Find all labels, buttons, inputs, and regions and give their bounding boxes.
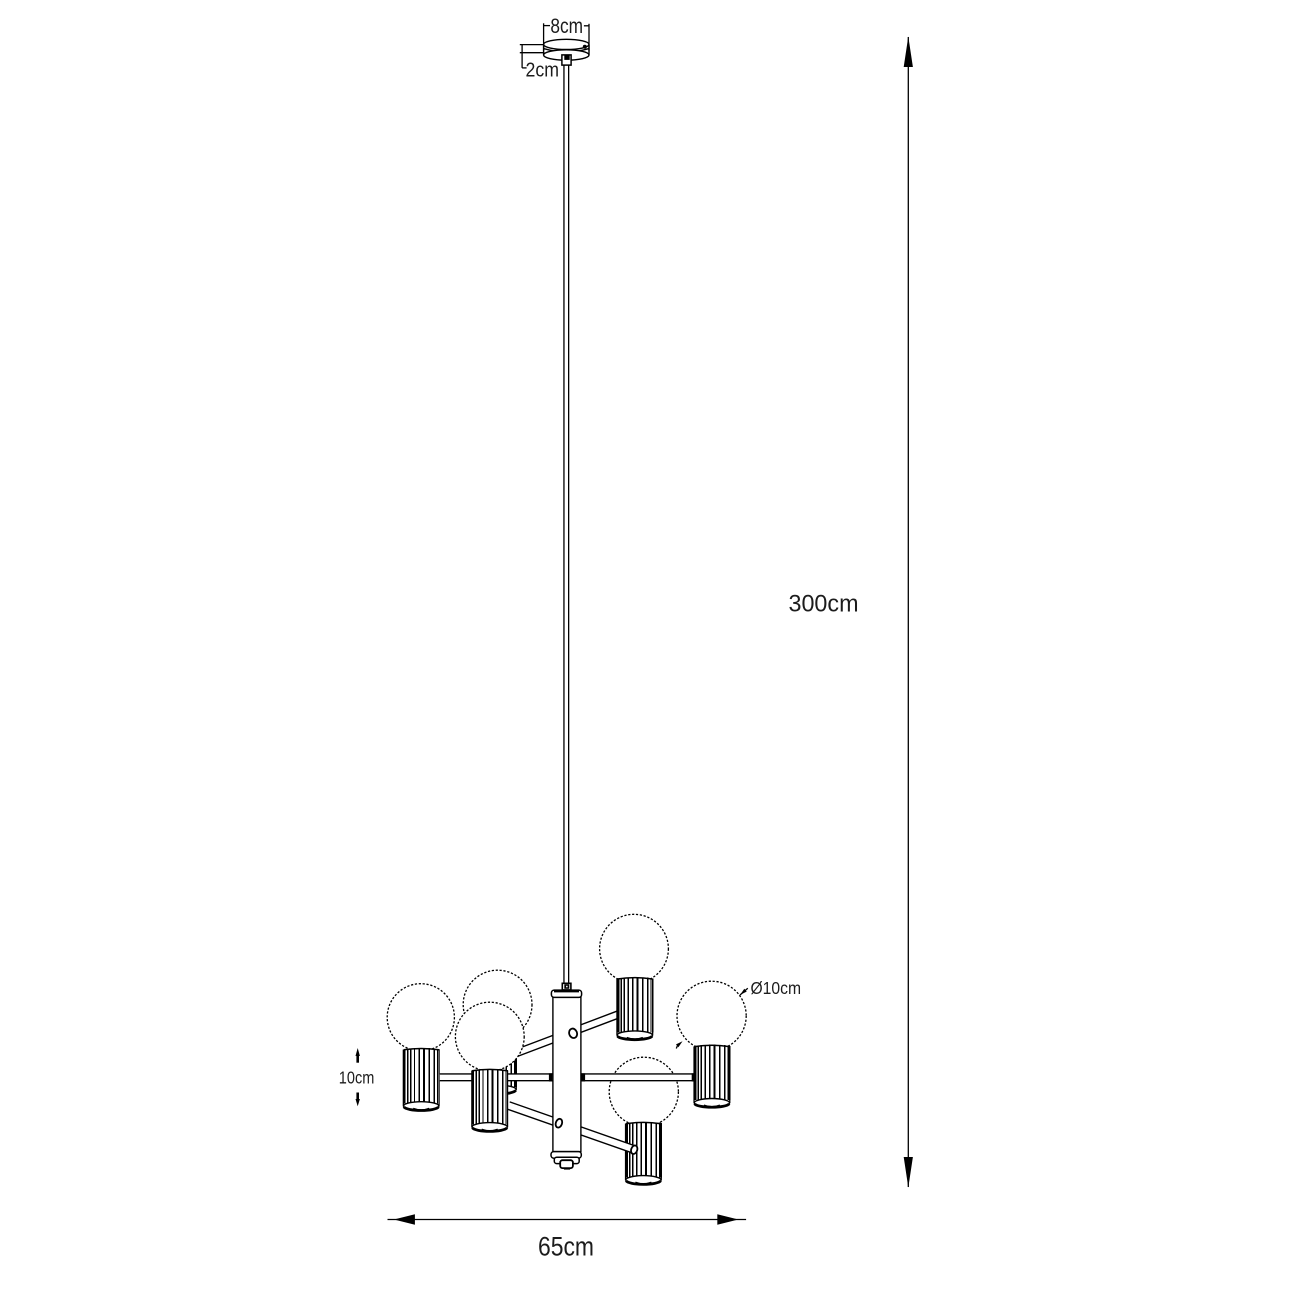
svg-text:2cm: 2cm — [526, 59, 560, 81]
svg-text:10cm: 10cm — [339, 1068, 375, 1088]
svg-text:65cm: 65cm — [538, 1232, 594, 1262]
svg-text:8cm: 8cm — [550, 15, 583, 38]
svg-text:Ø10cm: Ø10cm — [751, 978, 802, 998]
svg-text:300cm: 300cm — [789, 591, 859, 618]
